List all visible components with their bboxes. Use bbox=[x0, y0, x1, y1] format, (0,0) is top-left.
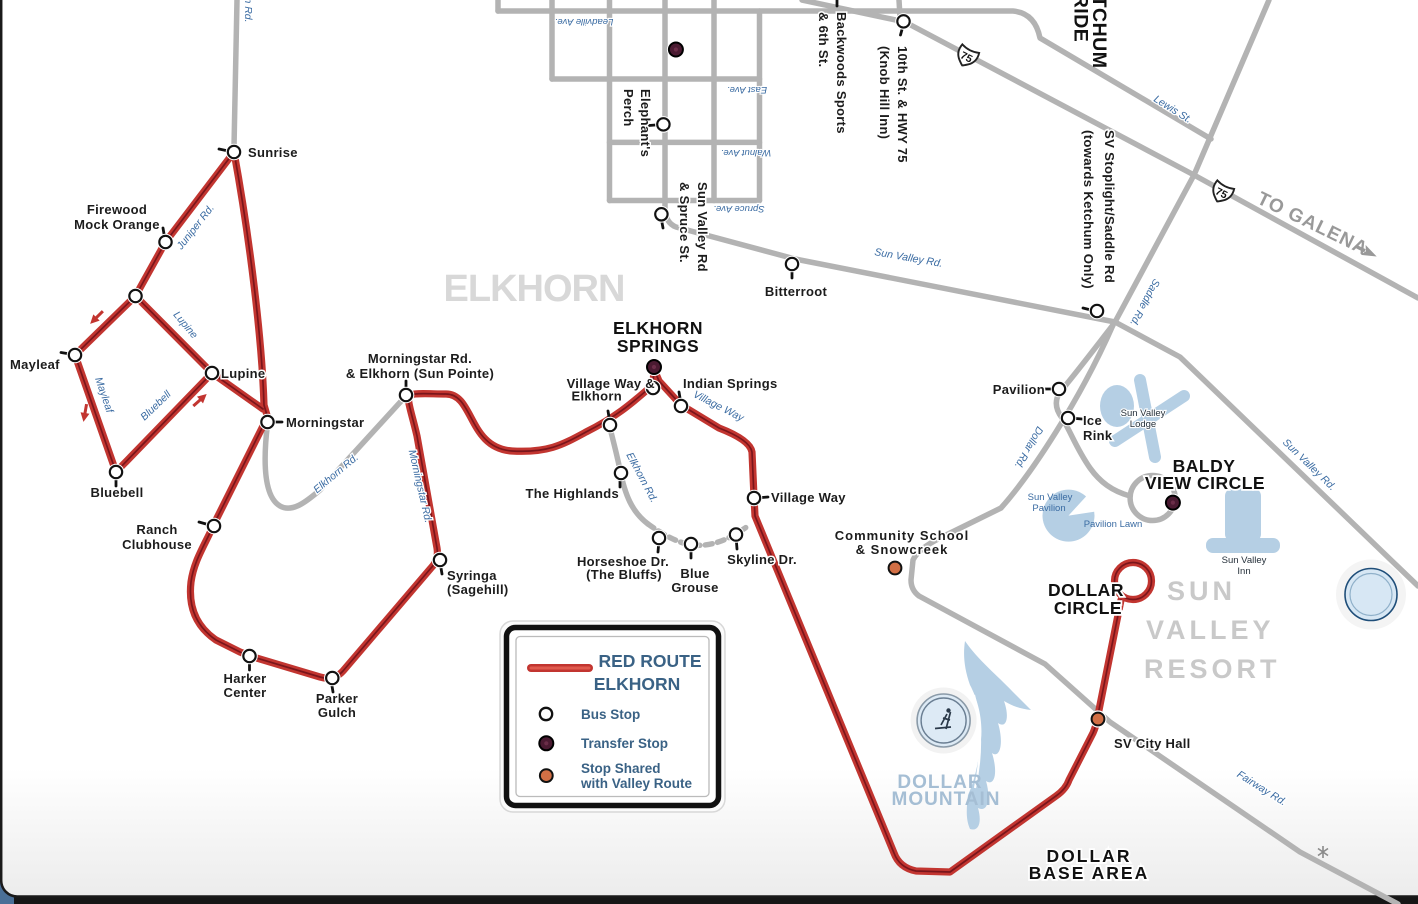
svg-text:Center: Center bbox=[224, 685, 267, 700]
svg-text:BASE AREA: BASE AREA bbox=[1029, 863, 1149, 883]
svg-text:Pavilion: Pavilion bbox=[993, 382, 1045, 397]
svg-text:Mayleaf: Mayleaf bbox=[10, 357, 60, 372]
svg-text:VALLEY: VALLEY bbox=[1146, 615, 1275, 645]
svg-text:Bus Stop: Bus Stop bbox=[581, 707, 640, 722]
svg-text:CIRCLE: CIRCLE bbox=[1054, 598, 1122, 618]
svg-text:Community School: Community School bbox=[835, 528, 969, 543]
svg-text:& Elkhorn (Sun Pointe): & Elkhorn (Sun Pointe) bbox=[346, 366, 494, 381]
svg-text:10th St. & HWY 75: 10th St. & HWY 75 bbox=[895, 46, 910, 163]
svg-text:Ice: Ice bbox=[1083, 413, 1102, 428]
svg-text:Firewood: Firewood bbox=[87, 202, 147, 217]
svg-text:MOUNTAIN: MOUNTAIN bbox=[892, 789, 1001, 810]
svg-text:Skyline Dr.: Skyline Dr. bbox=[727, 552, 797, 567]
svg-text:Backwoods Sports: Backwoods Sports bbox=[834, 12, 849, 134]
svg-text:SV Stoplight/Saddle Rd: SV Stoplight/Saddle Rd bbox=[1102, 130, 1117, 283]
svg-text:Ranch: Ranch bbox=[136, 522, 177, 537]
svg-text:ELKHORN: ELKHORN bbox=[444, 268, 625, 310]
svg-text:Lupine: Lupine bbox=[221, 366, 265, 381]
svg-text:Lodge: Lodge bbox=[1130, 419, 1156, 430]
svg-text:Village Way: Village Way bbox=[771, 490, 846, 505]
svg-text:Pavilion: Pavilion bbox=[1032, 503, 1065, 514]
svg-text:The Highlands: The Highlands bbox=[526, 486, 619, 501]
svg-text:Stop Shared: Stop Shared bbox=[581, 761, 661, 776]
svg-text:Bitterroot: Bitterroot bbox=[765, 284, 828, 299]
svg-text:Morningstar Rd.: Morningstar Rd. bbox=[368, 351, 472, 366]
svg-text:Sun Valley: Sun Valley bbox=[1121, 408, 1166, 419]
svg-text:Leadville Ave.: Leadville Ave. bbox=[555, 16, 614, 27]
svg-text:East Ave.: East Ave. bbox=[727, 84, 767, 95]
svg-text:ELKHORN: ELKHORN bbox=[613, 318, 703, 338]
svg-text:Syringa: Syringa bbox=[447, 568, 497, 583]
svg-text:RED ROUTE: RED ROUTE bbox=[598, 651, 701, 671]
svg-text:Clubhouse: Clubhouse bbox=[122, 537, 192, 552]
svg-text:Morningstar: Morningstar bbox=[286, 415, 364, 430]
svg-text:RIDE: RIDE bbox=[1070, 0, 1092, 42]
svg-text:(Sagehill): (Sagehill) bbox=[447, 582, 509, 597]
svg-text:Inn: Inn bbox=[1237, 566, 1250, 577]
svg-text:Perch: Perch bbox=[621, 89, 636, 127]
svg-text:Walnut Ave.: Walnut Ave. bbox=[721, 147, 772, 158]
svg-text:VIEW CIRCLE: VIEW CIRCLE bbox=[1145, 473, 1265, 493]
svg-text:Parker: Parker bbox=[316, 691, 358, 706]
svg-text:SUN: SUN bbox=[1167, 576, 1236, 606]
svg-text:& Spruce St.: & Spruce St. bbox=[677, 182, 692, 263]
svg-text:Blue: Blue bbox=[680, 566, 709, 581]
svg-text:(The Bluffs): (The Bluffs) bbox=[586, 567, 662, 582]
svg-text:Spruce Ave.: Spruce Ave. bbox=[713, 203, 764, 214]
svg-text:Harker: Harker bbox=[224, 671, 267, 686]
svg-text:Bluebell: Bluebell bbox=[91, 485, 144, 500]
svg-text:Elkhorn: Elkhorn bbox=[572, 389, 623, 404]
svg-text:n Rd.: n Rd. bbox=[242, 0, 254, 23]
svg-text:(Knob Hill Inn): (Knob Hill Inn) bbox=[877, 46, 892, 139]
svg-text:Rink: Rink bbox=[1083, 428, 1113, 443]
svg-text:Sun Valley Rd: Sun Valley Rd bbox=[695, 182, 710, 272]
svg-text:Pavilion Lawn: Pavilion Lawn bbox=[1084, 519, 1143, 530]
svg-text:Elephant's: Elephant's bbox=[638, 89, 653, 157]
svg-text:& 6th St.: & 6th St. bbox=[816, 12, 831, 67]
svg-text:RESORT: RESORT bbox=[1144, 654, 1281, 684]
svg-text:Transfer Stop: Transfer Stop bbox=[581, 736, 668, 751]
svg-text:DOLLAR: DOLLAR bbox=[1048, 580, 1124, 600]
svg-text:Gulch: Gulch bbox=[318, 705, 356, 720]
svg-text:Sunrise: Sunrise bbox=[248, 145, 298, 160]
svg-text:Mock Orange: Mock Orange bbox=[74, 217, 160, 232]
svg-text:Sun Valley: Sun Valley bbox=[1028, 492, 1073, 503]
svg-text:(towards Ketchum Only): (towards Ketchum Only) bbox=[1081, 130, 1096, 289]
svg-text:Grouse: Grouse bbox=[671, 580, 718, 595]
svg-text:SPRINGS: SPRINGS bbox=[617, 336, 699, 356]
svg-text:with Valley Route: with Valley Route bbox=[580, 776, 693, 791]
svg-text:Sun Valley: Sun Valley bbox=[1222, 555, 1267, 566]
svg-text:& Snowcreek: & Snowcreek bbox=[856, 542, 949, 557]
svg-text:ELKHORN: ELKHORN bbox=[594, 674, 681, 694]
svg-text:SV City Hall: SV City Hall bbox=[1114, 736, 1191, 751]
